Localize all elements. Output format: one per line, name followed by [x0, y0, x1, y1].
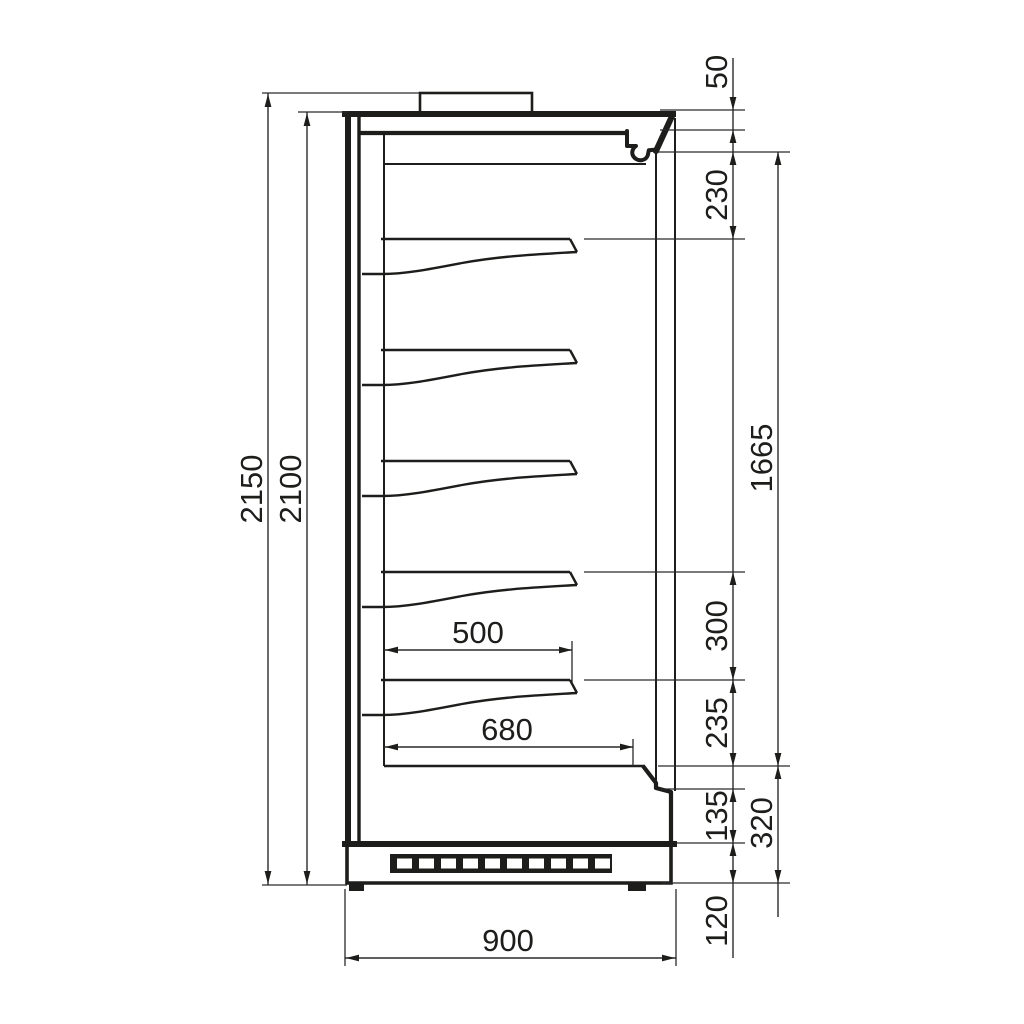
shelf-1 — [362, 239, 577, 274]
top-fan-box — [420, 93, 532, 113]
dim-label-base-section-height: 320 — [744, 797, 779, 849]
dim-label-shelf-spacing: 300 — [699, 600, 734, 652]
dim-label-shelf-depth: 500 — [452, 615, 504, 650]
technical-drawing-canvas: 2150 2100 50 230 1665 300 235 135 320 12… — [0, 0, 1024, 1024]
dim-label-overall-height: 2150 — [234, 455, 269, 524]
canopy-front-slope — [656, 114, 673, 151]
dim-label-lower-front-height: 135 — [699, 790, 734, 842]
foot-rear — [349, 884, 364, 891]
dim-label-deck-depth: 680 — [481, 712, 533, 747]
cabinet-outline — [345, 93, 675, 891]
shelf-4 — [362, 572, 577, 607]
dimension-labels: 2150 2100 50 230 1665 300 235 135 320 12… — [234, 55, 779, 958]
shelf-2 — [362, 350, 577, 385]
dim-label-plinth-height: 120 — [699, 895, 734, 947]
foot-front — [628, 884, 646, 891]
multideck-side-view-drawing: 2150 2100 50 230 1665 300 235 135 320 12… — [0, 0, 1024, 1024]
dim-label-top-clearance: 50 — [699, 55, 734, 89]
dim-label-last-shelf-to-deck: 235 — [699, 697, 734, 749]
shelf-5 — [362, 680, 577, 715]
dim-label-usable-height: 1665 — [744, 424, 779, 493]
dim-label-case-height: 2100 — [273, 455, 308, 524]
ventilation-grille — [390, 854, 612, 873]
shelf-3 — [362, 461, 577, 496]
canopy-light-hook — [627, 131, 657, 160]
dim-label-top-to-first-shelf: 230 — [699, 169, 734, 221]
dim-label-overall-depth: 900 — [482, 923, 534, 958]
